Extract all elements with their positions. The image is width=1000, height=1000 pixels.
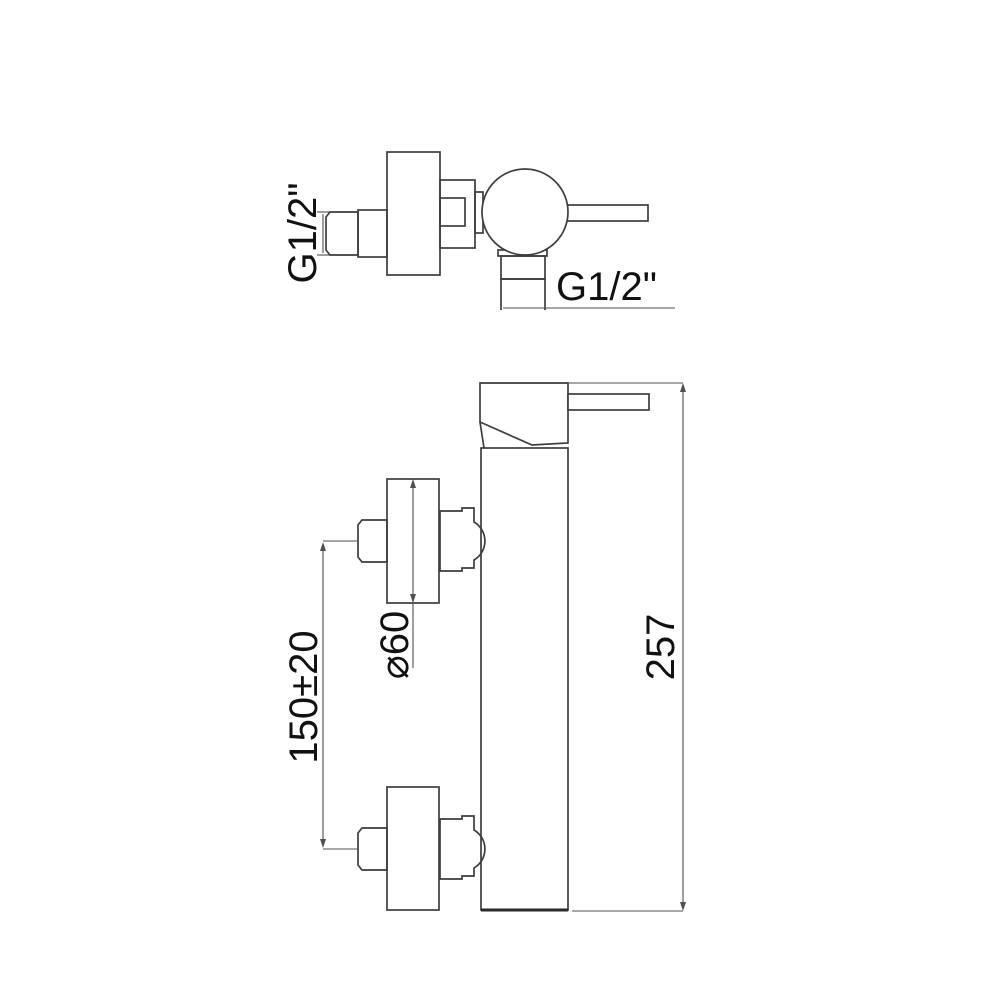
- body-notch-side: [440, 198, 465, 226]
- inlet-thread-label: G1/2": [281, 183, 325, 284]
- diameter-arrow-down: [410, 594, 416, 603]
- body-step-side: [440, 180, 475, 248]
- lever-handle-side: [566, 205, 648, 221]
- inlet-fitting-outer: [326, 212, 358, 255]
- bottom-union: [358, 787, 485, 910]
- mixer-body-front: [481, 448, 568, 910]
- outlet-spout-lower: [501, 279, 545, 310]
- cap-edge-sliver: [480, 422, 484, 448]
- side-view: G1/2" G1/2": [281, 152, 675, 310]
- top-union: [358, 479, 485, 603]
- lever-handle-front: [568, 394, 649, 410]
- diameter-dimension: ⌀60: [373, 479, 417, 679]
- outlet-thread-label: G1/2": [556, 265, 657, 309]
- spacing-arrow-down: [320, 839, 326, 848]
- spacing-dimension: 150±20: [282, 541, 358, 849]
- inlet-fitting-inner: [358, 210, 387, 257]
- diameter-arrow-up: [410, 479, 416, 488]
- height-label: 257: [639, 614, 683, 681]
- height-arrow-down: [680, 902, 686, 911]
- spacing-arrow-up: [320, 542, 326, 551]
- valve-ball-side: [482, 169, 568, 255]
- diameter-label: ⌀60: [373, 611, 417, 680]
- top-union-fitting: [358, 520, 387, 562]
- front-view: ⌀60 150±20 257: [282, 383, 686, 911]
- bottom-union-nut: [440, 816, 485, 879]
- height-dimension: 257: [568, 383, 686, 911]
- outlet-spout-upper: [501, 256, 545, 279]
- bottom-union-flange: [387, 787, 439, 910]
- top-union-nut: [440, 508, 485, 571]
- height-arrow-up: [680, 383, 686, 392]
- bottom-union-fitting: [358, 828, 387, 870]
- spacing-label: 150±20: [282, 630, 326, 763]
- faucet-technical-drawing: G1/2" G1/2": [0, 0, 1000, 1000]
- wall-flange-side: [387, 152, 440, 275]
- mixer-cap-front: [480, 383, 568, 445]
